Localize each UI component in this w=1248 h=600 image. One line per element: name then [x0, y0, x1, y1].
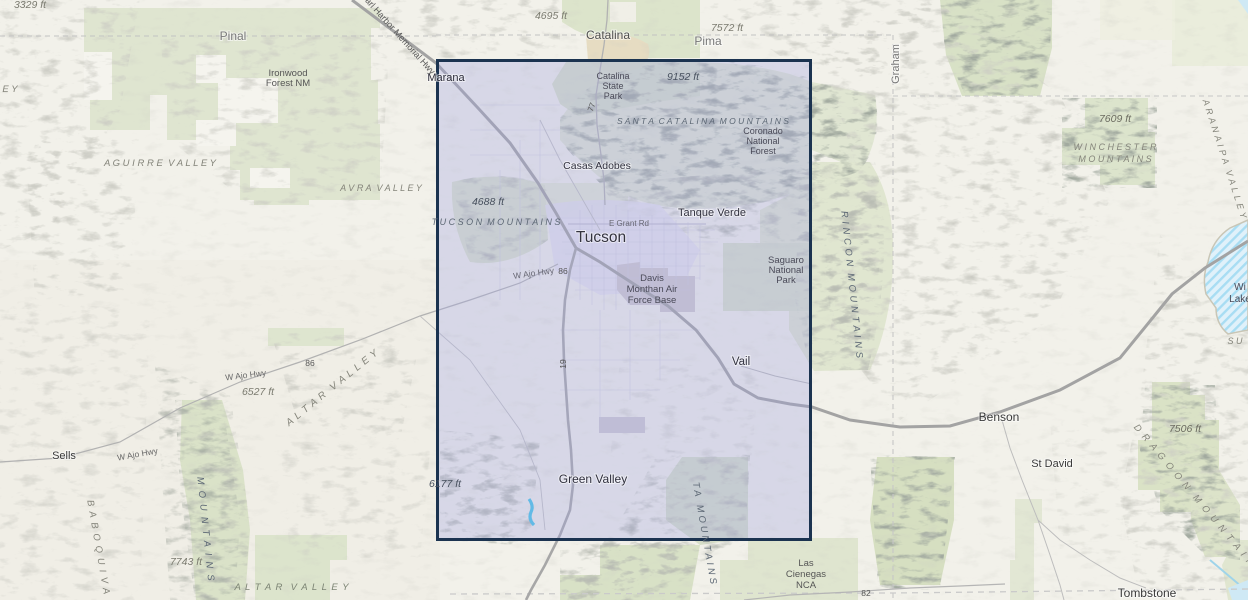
svg-text:19: 19 — [558, 359, 568, 369]
svg-text:E Grant Rd: E Grant Rd — [609, 219, 649, 228]
svg-text:Forest: Forest — [750, 146, 776, 156]
svg-text:3329 ft: 3329 ft — [14, 0, 47, 11]
svg-text:National: National — [746, 136, 779, 146]
svg-text:Casas Adobes: Casas Adobes — [563, 160, 631, 172]
svg-text:T U C S O N M O U N T A I N S: T U C S O N M O U N T A I N S — [432, 217, 561, 227]
svg-text:Catalina: Catalina — [596, 71, 629, 81]
svg-text:Monthan Air: Monthan Air — [627, 284, 678, 295]
svg-text:A G U I R R E V A L L E Y: A G U I R R E V A L L E Y — [103, 158, 217, 169]
svg-text:7743 ft: 7743 ft — [170, 556, 203, 568]
svg-text:6527 ft: 6527 ft — [242, 386, 275, 398]
svg-text:Park: Park — [776, 275, 796, 286]
svg-text:4688 ft: 4688 ft — [472, 196, 505, 208]
svg-text:Tombstone: Tombstone — [1118, 586, 1177, 600]
svg-text:Graham: Graham — [890, 44, 902, 84]
svg-text:Catalina: Catalina — [586, 28, 630, 42]
svg-text:4695 ft: 4695 ft — [535, 10, 568, 22]
svg-text:St David: St David — [1031, 458, 1073, 470]
svg-text:Lake: Lake — [1229, 294, 1248, 305]
svg-text:7506 ft: 7506 ft — [1169, 423, 1202, 435]
svg-text:82: 82 — [861, 588, 871, 598]
svg-text:Wi: Wi — [1234, 282, 1246, 293]
svg-text:E Y: E Y — [2, 84, 18, 95]
svg-text:A V R A V A L L E Y: A V R A V A L L E Y — [339, 183, 423, 193]
svg-text:Sells: Sells — [52, 450, 76, 462]
svg-text:Tucson: Tucson — [576, 229, 626, 246]
svg-text:W I N C H E S T E R: W I N C H E S T E R — [1073, 142, 1157, 152]
svg-text:Forest NM: Forest NM — [266, 78, 310, 89]
svg-text:6177 ft: 6177 ft — [429, 478, 462, 490]
svg-text:Green Valley: Green Valley — [559, 472, 627, 486]
svg-text:Pima: Pima — [694, 34, 722, 48]
svg-text:Park: Park — [604, 91, 623, 101]
svg-text:S A N T A C A T A L I N A M: S A N T A C A T A L I N A M O U N T A I … — [617, 116, 789, 126]
svg-text:7572 ft: 7572 ft — [711, 22, 744, 34]
svg-text:Force Base: Force Base — [628, 295, 677, 306]
svg-text:86: 86 — [305, 358, 315, 368]
svg-text:State: State — [602, 81, 623, 91]
svg-text:Marana: Marana — [427, 72, 465, 84]
svg-text:Las: Las — [798, 558, 814, 569]
svg-text:Cienegas: Cienegas — [786, 569, 826, 580]
svg-text:Pinal: Pinal — [220, 29, 247, 43]
svg-text:Benson: Benson — [979, 410, 1020, 424]
svg-text:Vail: Vail — [732, 356, 750, 368]
svg-text:S U: S U — [1227, 336, 1243, 346]
svg-text:M O U N T A I N S: M O U N T A I N S — [1078, 154, 1151, 164]
svg-text:7609 ft: 7609 ft — [1099, 113, 1132, 125]
svg-text:NCA: NCA — [796, 580, 817, 591]
svg-text:86: 86 — [558, 266, 568, 276]
svg-text:9152 ft: 9152 ft — [667, 71, 700, 83]
svg-text:A L T A R V A L L E Y: A L T A R V A L L E Y — [233, 582, 349, 593]
svg-text:Tanque Verde: Tanque Verde — [678, 207, 746, 219]
svg-text:Coronado: Coronado — [743, 126, 783, 136]
svg-text:Davis: Davis — [640, 273, 664, 284]
